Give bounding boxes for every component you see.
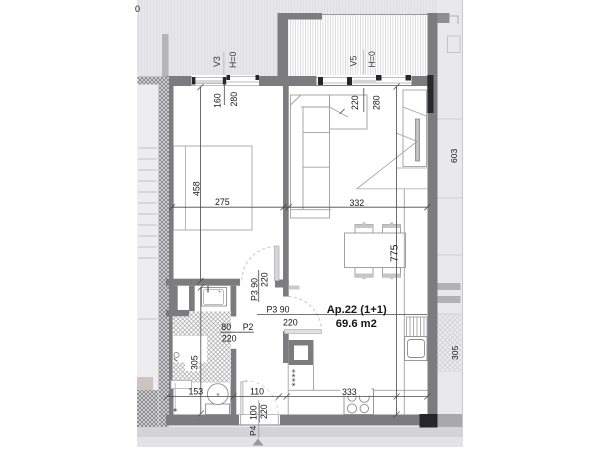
svg-text:280: 280 (229, 92, 239, 107)
svg-text:100: 100 (249, 405, 259, 420)
svg-text:P4: P4 (248, 425, 258, 436)
svg-text:220: 220 (260, 272, 270, 287)
svg-text:458: 458 (192, 181, 202, 196)
svg-text:80: 80 (221, 322, 231, 332)
svg-text:220: 220 (283, 317, 298, 327)
svg-text:280: 280 (372, 95, 382, 110)
svg-text:603: 603 (449, 149, 459, 163)
svg-text:153: 153 (189, 387, 204, 397)
svg-text:305: 305 (190, 355, 200, 370)
svg-text:H=0: H=0 (367, 51, 377, 67)
svg-text:160: 160 (213, 93, 223, 108)
svg-text:332: 332 (350, 198, 365, 208)
svg-text:220: 220 (259, 404, 269, 419)
svg-text:775: 775 (389, 244, 401, 262)
svg-text:P3 90: P3 90 (267, 305, 290, 315)
svg-text:H=0: H=0 (228, 52, 238, 68)
svg-text:220: 220 (222, 334, 237, 344)
svg-text:220: 220 (350, 95, 360, 110)
svg-text:305: 305 (450, 346, 460, 360)
svg-text:69.6 m2: 69.6 m2 (336, 318, 377, 330)
svg-text:110: 110 (250, 387, 264, 397)
svg-text:P3 90: P3 90 (250, 278, 260, 301)
svg-text:Ap.22 (1+1): Ap.22 (1+1) (327, 304, 387, 316)
svg-text:P2: P2 (243, 322, 254, 332)
svg-text:275: 275 (215, 197, 230, 207)
svg-text:0: 0 (135, 4, 140, 14)
svg-text:333: 333 (342, 387, 357, 397)
svg-text:✳: ✳ (291, 382, 296, 389)
svg-text:V5: V5 (349, 56, 359, 67)
svg-text:V3: V3 (212, 56, 222, 67)
